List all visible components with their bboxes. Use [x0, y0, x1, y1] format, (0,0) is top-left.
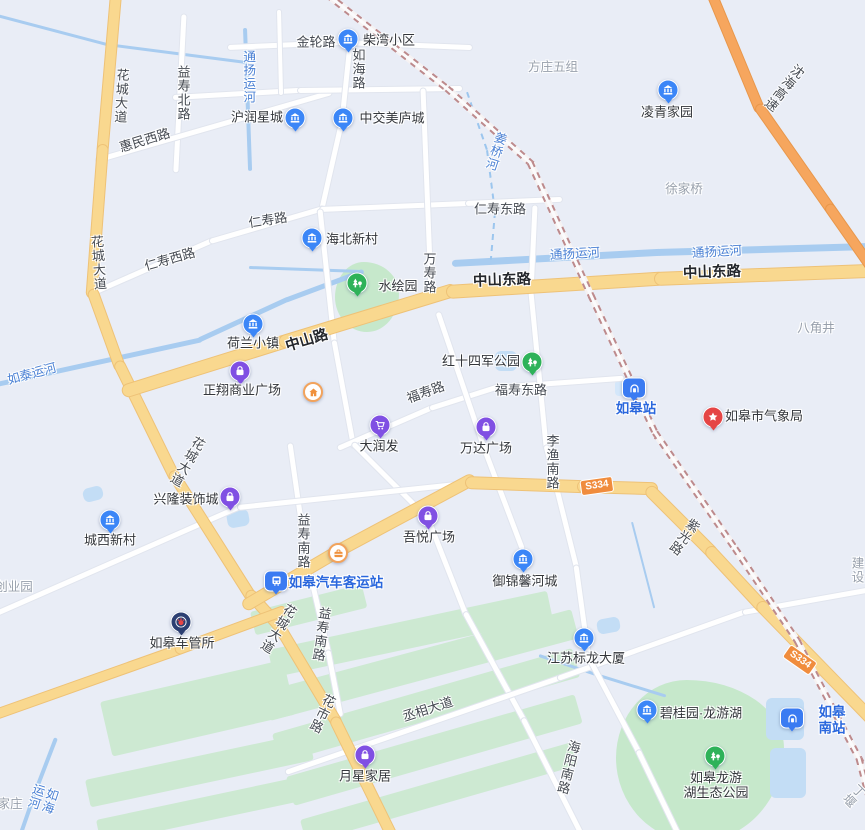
poi-marker-御锦馨河城[interactable] [513, 549, 534, 570]
poi-label-城西新村[interactable]: 城西新村 [84, 534, 136, 549]
poi-marker-凌青家园[interactable] [658, 80, 679, 101]
road-label: 李渔南路 [544, 434, 559, 490]
pond [770, 748, 806, 798]
poi-marker-如皋站[interactable] [622, 378, 646, 399]
map-canvas[interactable]: 花城大道花城大道花城大道花城大道花市路益寿北路惠民西路金轮路如海路仁寿西路仁寿路… [0, 0, 865, 830]
poi-marker-万达广场[interactable] [476, 417, 497, 438]
poi-marker-如皋车管所[interactable] [171, 612, 192, 633]
road [332, 340, 357, 448]
river [657, 242, 865, 255]
river [0, 13, 110, 47]
poi-marker-如皋南站[interactable] [780, 708, 804, 729]
road-label: 惠民西路 [118, 126, 172, 155]
area-label: 创业园 [0, 580, 33, 594]
area-label: 丁堰 [838, 780, 865, 809]
road-label: 万寿路 [421, 252, 436, 294]
poi-label-大润发[interactable]: 大润发 [359, 440, 398, 455]
road [298, 85, 462, 92]
poi-marker-水绘园[interactable] [347, 273, 368, 294]
work-location-marker[interactable] [328, 543, 348, 563]
poi-marker-碧桂园·龙游湖[interactable] [637, 700, 658, 721]
road-major [168, 469, 257, 601]
road-label: 福寿东路 [495, 384, 547, 399]
marker-tail [308, 247, 316, 256]
poi-label-碧桂园·龙游湖[interactable]: 碧桂园·龙游湖 [660, 707, 742, 722]
poi-label-如皋市气象局[interactable]: 如皋市气象局 [725, 410, 803, 425]
poi-label-正翔商业广场[interactable]: 正翔商业广场 [203, 384, 281, 399]
poi-marker-中交美庐城[interactable] [333, 108, 354, 129]
area-label: 建设 [852, 557, 865, 586]
river [631, 522, 655, 609]
highway [825, 202, 865, 273]
marker-tail [528, 371, 536, 380]
road [277, 10, 283, 95]
highway [755, 102, 836, 213]
road-label: 益寿北路 [175, 65, 190, 121]
river-dashed [490, 212, 496, 260]
poi-marker-海北新村[interactable] [302, 228, 323, 249]
poi-label-凌青家园[interactable]: 凌青家园 [641, 106, 693, 121]
road-label: 中山东路 [473, 272, 532, 291]
poi-marker-月星家居[interactable] [355, 745, 376, 766]
poi-marker-大润发[interactable] [370, 415, 391, 436]
poi-label-如皋南站[interactable]: 如皋南站 [816, 704, 849, 735]
marker-tail [643, 719, 651, 728]
poi-label-中交美庐城[interactable]: 中交美庐城 [359, 112, 424, 127]
poi-marker-正翔商业广场[interactable] [230, 361, 251, 382]
route-badge-S334: S334 [579, 476, 614, 496]
marker-tail [709, 426, 717, 435]
road-major [465, 477, 586, 492]
poi-marker-兴隆装饰城[interactable] [220, 487, 241, 508]
marker-tail [344, 48, 352, 57]
poi-marker-沪润星城[interactable] [285, 108, 306, 129]
water-label: 如泰运河 [6, 361, 58, 388]
poi-marker-荷兰小镇[interactable] [243, 314, 264, 335]
poi-label-如皋汽车客运站[interactable]: 如皋汽车客运站 [289, 575, 384, 591]
poi-marker-柴湾小区[interactable] [338, 29, 359, 50]
poi-label-万达广场[interactable]: 万达广场 [460, 442, 512, 457]
road-label: 仁寿西路 [143, 246, 197, 275]
marker-tail [353, 292, 361, 301]
road [320, 200, 470, 211]
poi-label-沪润星城[interactable]: 沪润星城 [231, 111, 283, 126]
water-label: 通扬运河 [241, 50, 255, 104]
road-label: 沈海高速 [760, 60, 806, 113]
road-label: 益寿南路 [295, 513, 310, 569]
poi-label-水绘园[interactable]: 水绘园 [378, 280, 417, 295]
poi-marker-如皋市气象局[interactable] [703, 407, 724, 428]
poi-marker-如皋龙游湖生态公园[interactable] [705, 746, 726, 767]
poi-label-柴湾小区[interactable]: 柴湾小区 [363, 34, 415, 49]
road-label: 金轮路 [296, 36, 335, 51]
area-label: 方庄五组 [528, 60, 578, 74]
road [483, 449, 525, 549]
area-label: 八角井 [797, 321, 835, 335]
poi-label-如皋龙游湖生态公园[interactable]: 如皋龙游 湖生态公园 [683, 771, 748, 801]
poi-marker-江苏标龙大厦[interactable] [574, 628, 595, 649]
area-label: 徐家桥 [665, 182, 703, 196]
poi-label-海北新村[interactable]: 海北新村 [326, 233, 378, 248]
road-label: 中山东路 [683, 264, 742, 283]
poi-label-兴隆装饰城[interactable]: 兴隆装饰城 [153, 493, 218, 508]
road-label: 花城大道 [88, 235, 107, 292]
poi-label-如皋车管所[interactable]: 如皋车管所 [149, 637, 214, 652]
poi-label-荷兰小镇[interactable]: 荷兰小镇 [227, 337, 279, 352]
road-label: 仁寿路 [248, 211, 289, 232]
home-location-marker[interactable] [303, 382, 323, 402]
poi-label-吾悦广场[interactable]: 吾悦广场 [403, 531, 455, 546]
poi-marker-吾悦广场[interactable] [418, 506, 439, 527]
poi-label-月星家居[interactable]: 月星家居 [339, 770, 391, 785]
marker-tail [339, 127, 347, 136]
railway [588, 294, 661, 439]
poi-label-御锦馨河城[interactable]: 御锦馨河城 [492, 575, 557, 590]
pond [596, 616, 621, 635]
water-label: 通扬运河 [550, 246, 601, 263]
road-label: 花城大道 [111, 68, 129, 125]
water-label: 通扬运河 [692, 244, 743, 261]
river [249, 266, 364, 273]
marker-tail [226, 506, 234, 515]
poi-label-江苏标龙大厦[interactable]: 江苏标龙大厦 [547, 652, 625, 667]
pond [82, 485, 105, 504]
highway [708, 0, 765, 113]
poi-label-红十四军公园[interactable]: 红十四军公园 [442, 355, 520, 370]
marker-tail [788, 727, 796, 736]
poi-marker-城西新村[interactable] [100, 510, 121, 531]
poi-label-如皋站[interactable]: 如皋站 [616, 401, 657, 417]
railway [732, 546, 803, 647]
marker-tail [291, 127, 299, 136]
marker-tail [272, 590, 280, 599]
road-label: 仁寿东路 [474, 203, 526, 218]
poi-marker-红十四军公园[interactable] [522, 352, 543, 373]
poi-marker-如皋汽车客运站[interactable] [264, 571, 288, 592]
area-label: 家庄 [0, 797, 23, 811]
